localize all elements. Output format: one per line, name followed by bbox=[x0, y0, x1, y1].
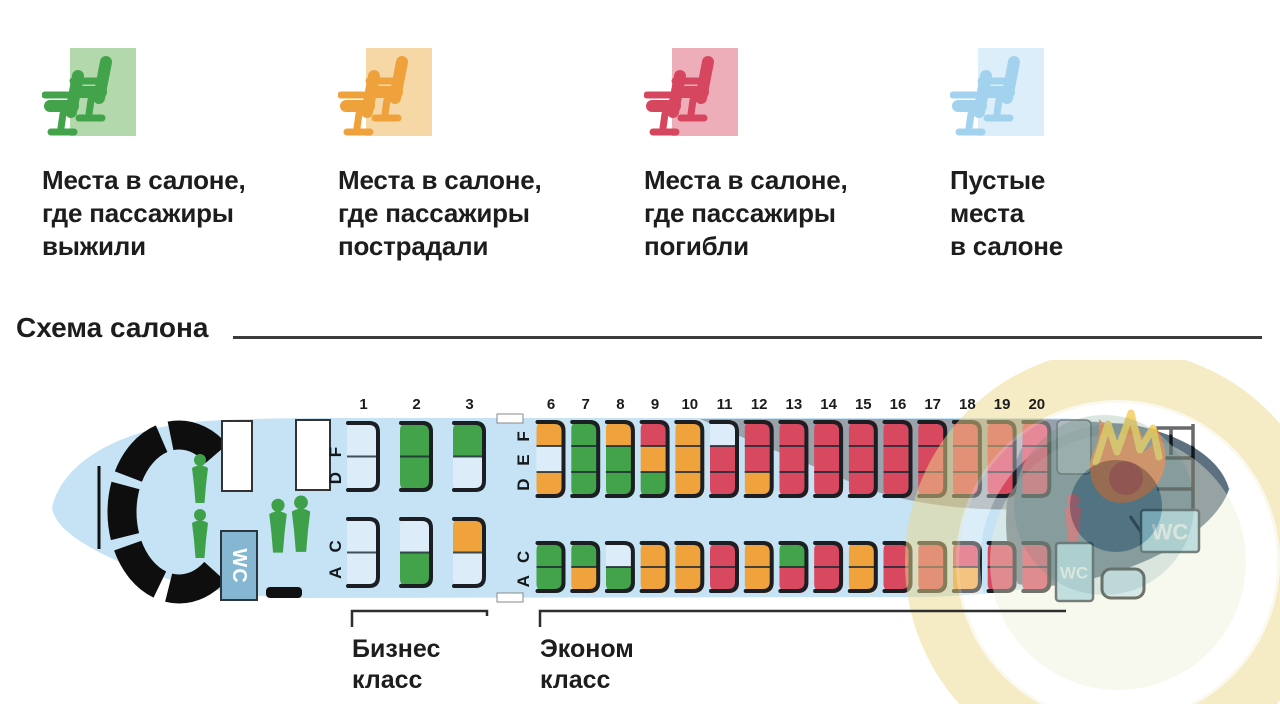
seat-16E bbox=[884, 446, 913, 472]
legend-item-injured: Места в салоне, где пассажиры пострадали bbox=[338, 46, 620, 263]
section-title: Схема салона bbox=[16, 312, 209, 344]
row-number-3: 3 bbox=[465, 396, 473, 413]
galley-door-1 bbox=[222, 421, 252, 491]
title-rule bbox=[233, 336, 1262, 339]
svg-text:WC: WC bbox=[228, 548, 250, 583]
front-lower-door bbox=[266, 587, 302, 598]
row-number-10: 10 bbox=[681, 396, 698, 413]
legend-item-died: Места в салоне, где пассажиры погибли bbox=[644, 46, 926, 263]
row-number-8: 8 bbox=[616, 396, 624, 413]
row-number-14: 14 bbox=[820, 396, 837, 413]
row-number-1: 1 bbox=[359, 396, 367, 413]
seat-pair-died-icon bbox=[644, 46, 926, 160]
row-number-2: 2 bbox=[412, 396, 420, 413]
seat-pair-survived-icon bbox=[42, 46, 324, 160]
row-number-9: 9 bbox=[651, 396, 659, 413]
economy-class-label: Эконом класс bbox=[540, 634, 634, 696]
letters-economy-ac: A C bbox=[514, 547, 533, 588]
seat-15E bbox=[849, 446, 878, 472]
seat-14E bbox=[814, 446, 843, 472]
front-wc: WC bbox=[221, 531, 257, 600]
seat-6E bbox=[537, 446, 566, 472]
row-number-6: 6 bbox=[547, 396, 555, 413]
exit-marker-bottom bbox=[497, 593, 523, 602]
legend-item-survived: Места в салоне, где пассажиры выжили bbox=[42, 46, 324, 263]
legend-label-died: Места в салоне, где пассажиры погибли bbox=[644, 164, 926, 263]
row-number-20: 20 bbox=[1028, 396, 1045, 413]
letters-business-ac: A C bbox=[326, 535, 345, 579]
legend-label-injured: Места в салоне, где пассажиры пострадали bbox=[338, 164, 620, 263]
row-number-19: 19 bbox=[994, 396, 1011, 413]
seat-13E bbox=[779, 446, 808, 472]
row-number-17: 17 bbox=[924, 396, 941, 413]
row-number-16: 16 bbox=[890, 396, 907, 413]
row-number-15: 15 bbox=[855, 396, 872, 413]
row-number-18: 18 bbox=[959, 396, 976, 413]
legend-label-empty: Пустые места в салоне bbox=[950, 164, 1232, 263]
seat-12E bbox=[745, 446, 774, 472]
business-class-label: Бизнес класс bbox=[352, 634, 440, 696]
exit-marker-top bbox=[497, 414, 523, 423]
seat-pair-empty-icon bbox=[950, 46, 1232, 160]
letters-economy-def: D E F bbox=[514, 427, 533, 490]
legend-label-survived: Места в салоне, где пассажиры выжили bbox=[42, 164, 324, 263]
row-number-13: 13 bbox=[786, 396, 803, 413]
seat-11E bbox=[710, 446, 739, 472]
seat-7E bbox=[571, 446, 600, 472]
seat-10E bbox=[675, 446, 704, 472]
row-number-12: 12 bbox=[751, 396, 768, 413]
legend-item-empty: Пустые места в салоне bbox=[950, 46, 1232, 263]
seat-8E bbox=[606, 446, 635, 472]
infographic: Места в салоне, где пассажиры выжили Мес… bbox=[0, 0, 1280, 704]
letters-business-df: D F bbox=[326, 442, 345, 484]
seat-9E bbox=[641, 446, 670, 472]
galley-door-2 bbox=[296, 420, 330, 490]
row-number-7: 7 bbox=[582, 396, 590, 413]
cabin-diagram: WC WC WC bbox=[0, 360, 1280, 704]
seat-pair-injured-icon bbox=[338, 46, 620, 160]
business-bracket bbox=[352, 611, 487, 627]
row-number-11: 11 bbox=[717, 396, 733, 413]
